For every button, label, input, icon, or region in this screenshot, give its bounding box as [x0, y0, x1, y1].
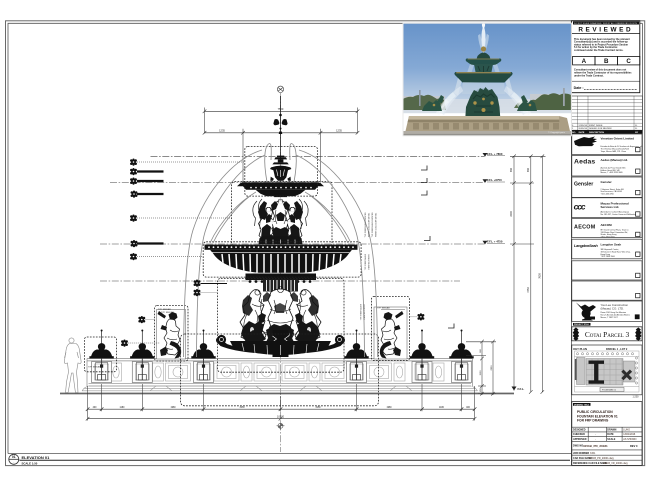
svg-text:Venetian Orient Limited: Venetian Orient Limited [601, 137, 635, 141]
svg-text:3151B_PD_20001.dwg: 3151B_PD_20001.dwg [589, 457, 614, 460]
svg-text:01: 01 [12, 455, 16, 459]
svg-text:ISSUED FOR REVIEW: ISSUED FOR REVIEW [589, 128, 613, 130]
svg-text:12/05/16: 12/05/16 [578, 125, 587, 127]
svg-text:TYP. FIBERGLASS: TYP. FIBERGLASS [360, 303, 363, 320]
svg-text:Gensler: Gensler [601, 180, 613, 184]
svg-text:4750: 4750 [527, 287, 530, 293]
svg-text:1:200: 1:200 [633, 396, 640, 399]
svg-text:T 852 2830 3500: T 852 2830 3500 [601, 256, 615, 258]
svg-text:(Macau) CO. LTD.: (Macau) CO. LTD. [601, 306, 625, 310]
svg-text:3150: 3150 [239, 407, 245, 409]
svg-text:F.F.L.: F.F.L. [518, 387, 525, 391]
svg-text:1180: 1180 [439, 407, 445, 409]
svg-text:B: B [604, 58, 609, 65]
svg-text:TYP. FIBERGLASS PAINTED: TYP. FIBERGLASS PAINTED [371, 212, 374, 238]
svg-text:2000: 2000 [510, 211, 513, 217]
svg-text:continued under the Trade: continued under the Trade Contract terms… [574, 49, 624, 52]
svg-text:20/05/16: 20/05/16 [578, 128, 587, 130]
svg-text:SCALE: SCALE [607, 438, 616, 441]
svg-text:1235: 1235 [219, 128, 225, 132]
svg-text:APPROVED: APPROVED [573, 438, 587, 441]
svg-text:Cotai Parcel 3: Cotai Parcel 3 [585, 330, 630, 339]
svg-text:T 852.3922.9000: T 852.3922.9000 [601, 237, 615, 239]
svg-text:LangdonSeah: LangdonSeah [574, 243, 598, 248]
svg-text:Services Ltd.: Services Ltd. [601, 205, 620, 209]
svg-text:DATE: DATE [579, 131, 585, 134]
svg-text:T 415.433.3700: T 415.433.3700 [601, 194, 614, 196]
svg-text:CHECKED: CHECKED [573, 433, 585, 436]
svg-text:Date :: Date : [574, 86, 584, 90]
svg-text:FOR FRP DRAWING: FOR FRP DRAWING [577, 419, 609, 423]
svg-text:TYP. SIMILAR: TYP. SIMILAR [88, 366, 101, 369]
svg-text:© Copyright paris: © Copyright paris [548, 131, 566, 134]
svg-text:JOB NUMBER: JOB NUMBER [573, 452, 589, 455]
svg-text:3151B_PD_20181: 3151B_PD_20181 [583, 444, 608, 448]
svg-text:Aedas (Macau) Ltd.: Aedas (Macau) Ltd. [601, 158, 629, 162]
svg-text:REV 0: REV 0 [630, 444, 638, 448]
svg-text:LUHO: LUHO [623, 428, 630, 431]
svg-text:TYP. FIBERGLASS PAINTED: TYP. FIBERGLASS PAINTED [364, 212, 367, 238]
svg-text:TYP. SIMILAR: TYP. SIMILAR [158, 308, 171, 311]
svg-text:3151: 3151 [590, 452, 596, 455]
svg-text:7600: 7600 [538, 273, 541, 279]
svg-text:F.F.L +6750: F.F.L +6750 [487, 178, 502, 182]
svg-text:AECOM: AECOM [574, 225, 596, 231]
svg-text:A: A [582, 58, 587, 65]
svg-text:1235: 1235 [336, 128, 342, 132]
svg-text:-: - [13, 462, 14, 465]
svg-text:Macau, T 2837 5527: Macau, T 2837 5527 [601, 317, 618, 319]
svg-text:DWG NO: DWG NO [573, 445, 583, 448]
svg-text:1980: 1980 [386, 407, 392, 409]
svg-text:850: 850 [527, 167, 530, 172]
svg-text:DATE: DATE [607, 433, 614, 436]
svg-text:DRAWING TITLE: DRAWING TITLE [574, 403, 590, 406]
svg-text:1980: 1980 [170, 407, 176, 409]
svg-text:Langdon Seah: Langdon Seah [601, 243, 622, 247]
svg-text:3150: 3150 [315, 407, 321, 409]
svg-text:No. 181-187, Centro Comercial: No. 181-187, Centro Comercial Brilhantis… [601, 213, 638, 216]
svg-text:REVIEWED: REVIEWED [578, 27, 633, 34]
svg-text:FINISH GOLD LEAF DETAIL: FINISH GOLD LEAF DETAIL [375, 213, 378, 237]
svg-text:Aedas: Aedas [574, 159, 595, 166]
svg-text:DRAWN: DRAWN [607, 428, 616, 431]
svg-text:F.F.L + 4750: F.F.L + 4750 [487, 240, 503, 244]
svg-text:2850: 2850 [491, 365, 493, 371]
svg-text:DESIGNED: DESIGNED [573, 428, 586, 431]
svg-text:Gensler: Gensler [574, 181, 593, 187]
svg-text:DO NOT SCALE DRAWINGS. VERIFY: DO NOT SCALE DRAWINGS. VERIFY ALL DIMENS… [574, 22, 638, 25]
svg-text:FIRST ISSUE: FIRST ISSUE [589, 125, 603, 127]
svg-text:1500: 1500 [480, 370, 482, 376]
svg-text:SCALE 1:50: SCALE 1:50 [22, 461, 38, 465]
svg-text:PROJECT TITLE: PROJECT TITLE [574, 324, 589, 326]
svg-text:ELEVATION 01: ELEVATION 01 [22, 455, 51, 460]
svg-text:1180: 1180 [120, 407, 126, 409]
svg-text:PARCEL 1 , LOT 2: PARCEL 1 , LOT 2 [606, 348, 628, 351]
svg-text:FOUNTAIN 01: FOUNTAIN 01 [602, 389, 617, 392]
svg-text:FINISH GOLD LEAF DETAIL: FINISH GOLD LEAF DETAIL [368, 213, 371, 237]
svg-text:13/04/2016: 13/04/2016 [623, 433, 636, 436]
svg-text:3151B_XR_20001.dwg: 3151B_XR_20001.dwg [603, 462, 628, 465]
svg-text:C: C [626, 58, 631, 65]
svg-text:F.F.L + 7800: F.F.L + 7800 [487, 152, 503, 156]
svg-text:TYP. FIBERGLASS: TYP. FIBERGLASS [364, 253, 367, 270]
svg-text:10300: 10300 [277, 414, 285, 418]
svg-text:PAINTED FINISH: PAINTED FINISH [368, 254, 371, 269]
svg-text:TYP. SIMILAR: TYP. SIMILAR [377, 307, 390, 310]
svg-text:AECOM: AECOM [601, 223, 613, 227]
svg-text:PAINTED FINISH: PAINTED FINISH [363, 304, 366, 319]
svg-text:AS SHOWN: AS SHOWN [623, 438, 636, 441]
svg-text:850: 850 [510, 167, 513, 172]
svg-text:Macau, T +853 2833 3069: Macau, T +853 2833 3069 [601, 172, 623, 174]
svg-text:under the Trade Contract.: under the Trade Contract. [574, 75, 604, 78]
svg-text:ccc: ccc [574, 202, 586, 212]
svg-text:Taipa, Macau SAR, P.R. China: Taipa, Macau SAR, P.R. China [601, 150, 628, 153]
svg-text:KEY PLAN: KEY PLAN [573, 347, 587, 351]
